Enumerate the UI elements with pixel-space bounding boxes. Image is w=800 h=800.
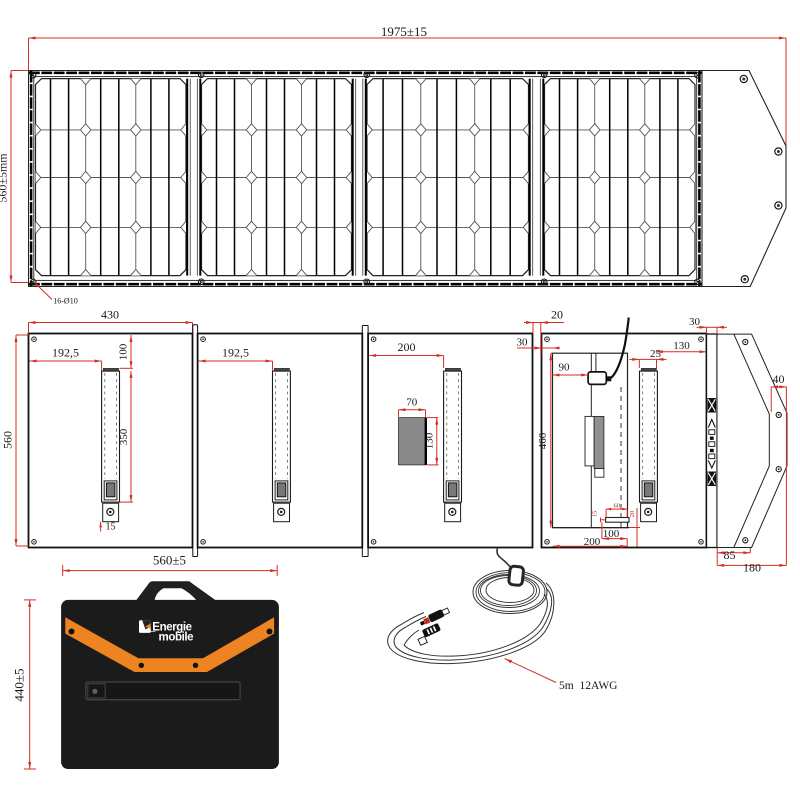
svg-text:25: 25 bbox=[650, 348, 662, 360]
svg-text:1975±15: 1975±15 bbox=[381, 24, 427, 39]
svg-text:430: 430 bbox=[101, 308, 119, 322]
svg-text:100: 100 bbox=[603, 528, 620, 540]
svg-text:560±5: 560±5 bbox=[153, 553, 186, 568]
svg-text:5m 12AWG: 5m 12AWG bbox=[559, 680, 618, 692]
svg-text:60: 60 bbox=[614, 502, 621, 509]
svg-text:200: 200 bbox=[398, 340, 416, 354]
svg-text:20: 20 bbox=[629, 511, 636, 518]
svg-text:192,5: 192,5 bbox=[222, 346, 249, 360]
svg-text:40: 40 bbox=[773, 372, 785, 386]
svg-text:440±5: 440±5 bbox=[12, 668, 27, 701]
svg-text:15: 15 bbox=[591, 511, 598, 518]
svg-text:560: 560 bbox=[1, 431, 15, 449]
svg-text:mobile: mobile bbox=[159, 632, 194, 644]
svg-text:16-Ø10: 16-Ø10 bbox=[53, 297, 77, 306]
svg-text:15: 15 bbox=[106, 522, 116, 533]
svg-text:70: 70 bbox=[406, 397, 418, 409]
svg-text:130: 130 bbox=[424, 432, 436, 449]
svg-text:100: 100 bbox=[118, 343, 130, 360]
svg-text:180: 180 bbox=[743, 561, 761, 575]
svg-text:460: 460 bbox=[537, 432, 549, 449]
svg-text:192,5: 192,5 bbox=[52, 346, 79, 360]
svg-text:560±5mm: 560±5mm bbox=[0, 153, 10, 203]
svg-text:350: 350 bbox=[118, 428, 130, 445]
svg-text:90: 90 bbox=[559, 362, 571, 374]
svg-text:200: 200 bbox=[584, 536, 601, 548]
svg-text:130: 130 bbox=[673, 340, 690, 352]
svg-text:20: 20 bbox=[551, 308, 563, 322]
svg-text:30: 30 bbox=[517, 337, 529, 349]
svg-text:30: 30 bbox=[689, 316, 701, 328]
svg-text:85: 85 bbox=[724, 548, 736, 562]
